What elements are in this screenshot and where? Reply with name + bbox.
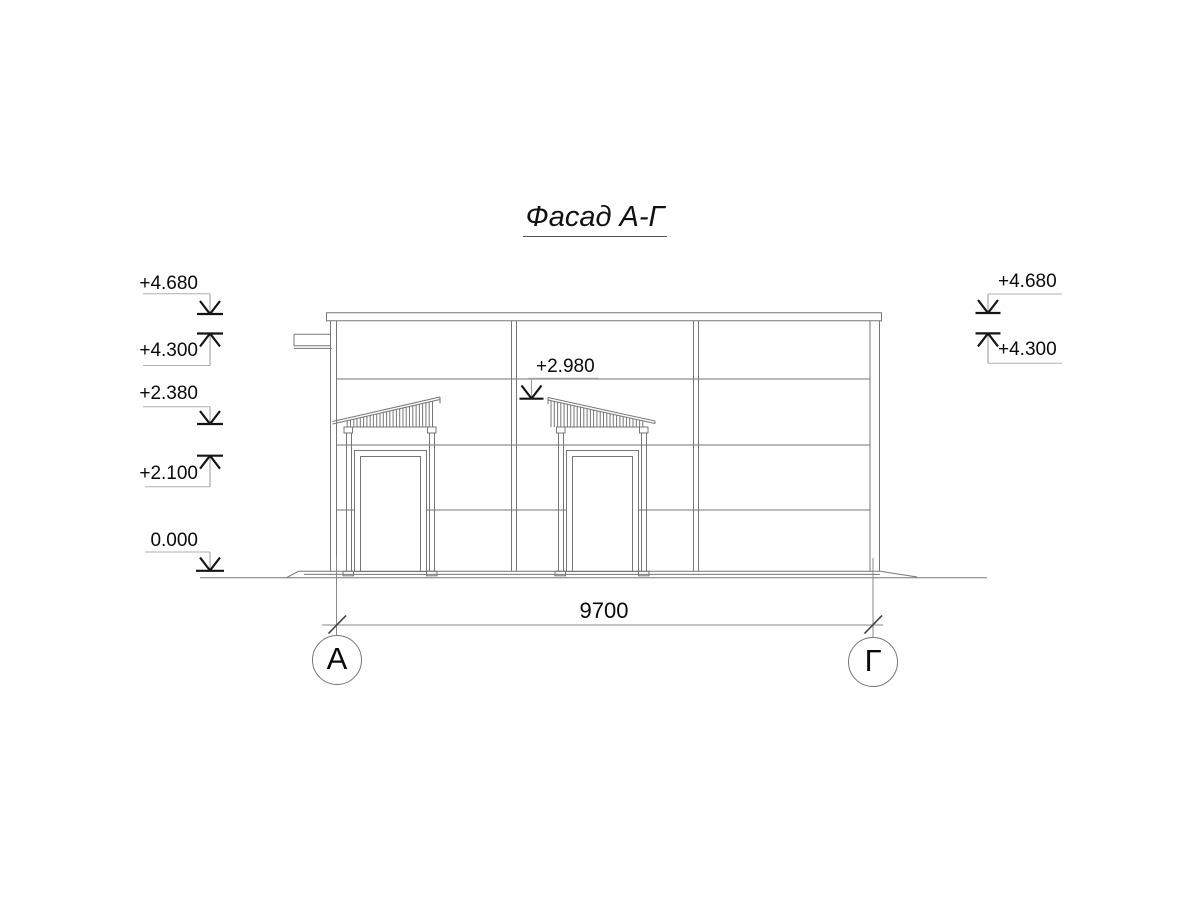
facade-linework [0,0,1200,900]
elevation-label-mid-2980: +2.980 [536,357,595,376]
canopy-right-hatch [551,401,643,427]
dimension-value: 9700 [554,600,654,622]
ground-lines [200,571,987,577]
axis-label-g: Г [843,645,903,676]
drawing-title: Фасад А-Г [523,203,667,237]
elevation-label-right-4300: +4.300 [998,340,1057,359]
scupper [294,334,332,348]
elevation-leaders [210,294,988,571]
canopy-right [548,398,655,428]
elevation-label-left-0000: 0.000 [98,531,198,550]
elevation-label-left-4680: +4.680 [98,274,198,293]
elevation-underlines [143,294,1062,552]
axis-label-a: А [307,643,367,674]
canopy-left [333,397,441,427]
elevation-label-left-2380: +2.380 [98,384,198,403]
elevation-label-left-4300: +4.300 [98,341,198,360]
elevation-label-left-2100: +2.100 [98,464,198,483]
facade-drawing-sheet: Фасад А-Г +4.680 +4.300 +2.380 +2.100 0.… [0,0,1200,900]
building-outline [327,313,882,572]
elevation-label-right-4680: +4.680 [998,272,1057,291]
door-left [343,427,437,576]
canopy-left-hatch [347,401,432,427]
axis-lines [322,556,883,637]
door-right [555,427,649,576]
